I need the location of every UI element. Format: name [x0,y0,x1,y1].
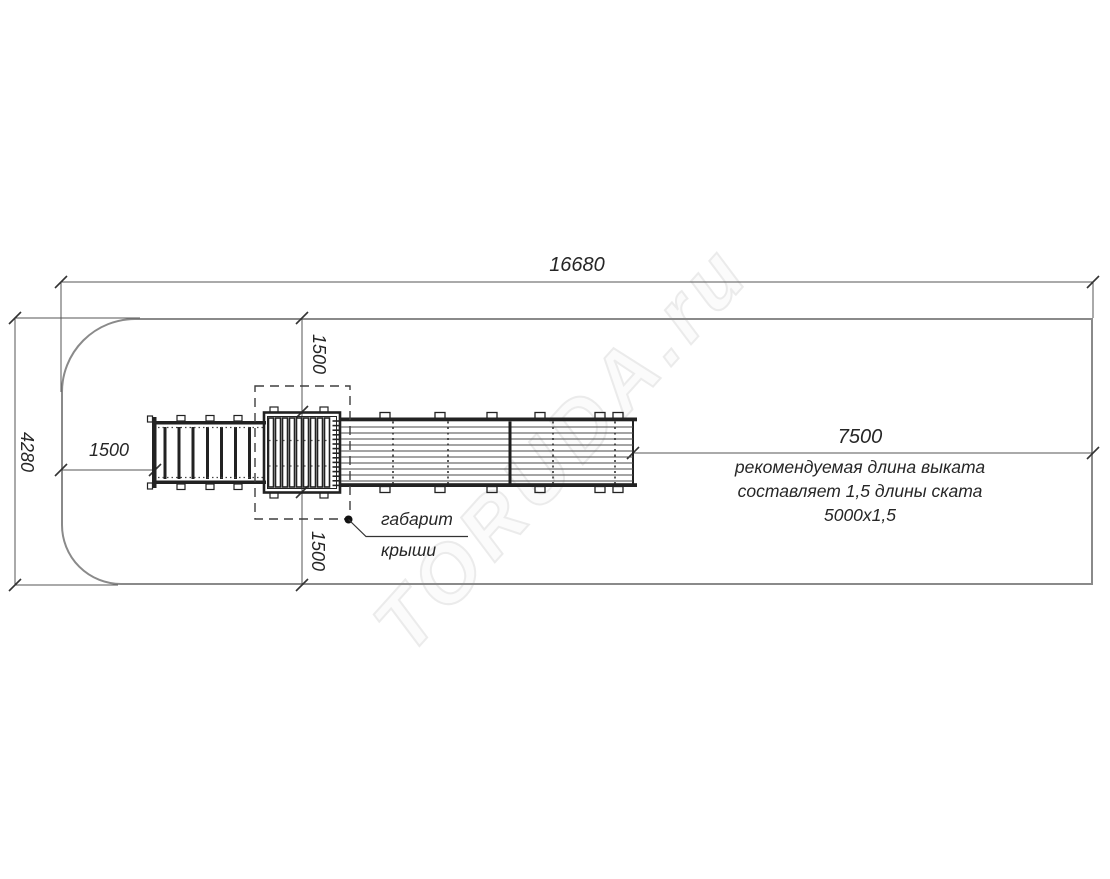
slide-joint-solid [509,422,512,484]
dim-text-roof-clearance-bottom: 1500 [307,511,327,591]
runout-note-line2: составляет 1,5 длины ската [710,482,1010,501]
slide-clamp-bottom [595,487,605,493]
platform-plank [304,418,309,487]
platform-plank [276,418,281,487]
slide-clamp-bottom [535,487,545,493]
slide-clamp-bottom [435,487,445,493]
drawing-canvas: TORUDA.ru [0,0,1110,879]
dim-text-roof-clearance-top: 1500 [308,314,328,394]
ladder-rung [164,427,167,479]
platform-plank [269,418,274,487]
slide-clamp-bottom [487,487,497,493]
ladder-rung [248,427,251,479]
roof-label-line1: габарит [381,510,453,529]
dim-text-approach: 1500 [59,441,159,461]
platform-plank [297,418,302,487]
ladder-end-tab-top [148,416,153,422]
slide-clamp-bottom [613,487,623,493]
ladder-clamp-top [234,416,242,422]
dim-text-overall-length: 16680 [527,254,627,276]
runout-note-line3: 5000х1,5 [710,506,1010,525]
ladder-clamp-bottom [206,484,214,490]
platform-plank [311,418,316,487]
ladder [148,416,267,490]
ladder-end-tab-bottom [148,483,153,489]
platform-plank [290,418,295,487]
platform-plank [325,418,330,487]
roof-label-line2: крыши [381,541,436,560]
runout-note-line1: рекомендуемая длина выката [710,458,1010,477]
ladder-rung [220,427,223,479]
dim-text-runout: 7500 [810,426,910,448]
plan-linework [0,0,1110,879]
ladder-rung [192,427,195,479]
ladder-rung [178,427,181,479]
ladder-clamp-bottom [234,484,242,490]
platform [264,407,341,498]
ladder-clamp-bottom [177,484,185,490]
platform-plank [318,418,323,487]
dim-text-overall-width: 4280 [16,412,36,492]
ladder-rung [234,427,237,479]
platform-plank [283,418,288,487]
ladder-clamp-top [206,416,214,422]
ladder-clamp-top [177,416,185,422]
ladder-rung [206,427,209,479]
slide-clamp-bottom [380,487,390,493]
slide [340,413,637,493]
